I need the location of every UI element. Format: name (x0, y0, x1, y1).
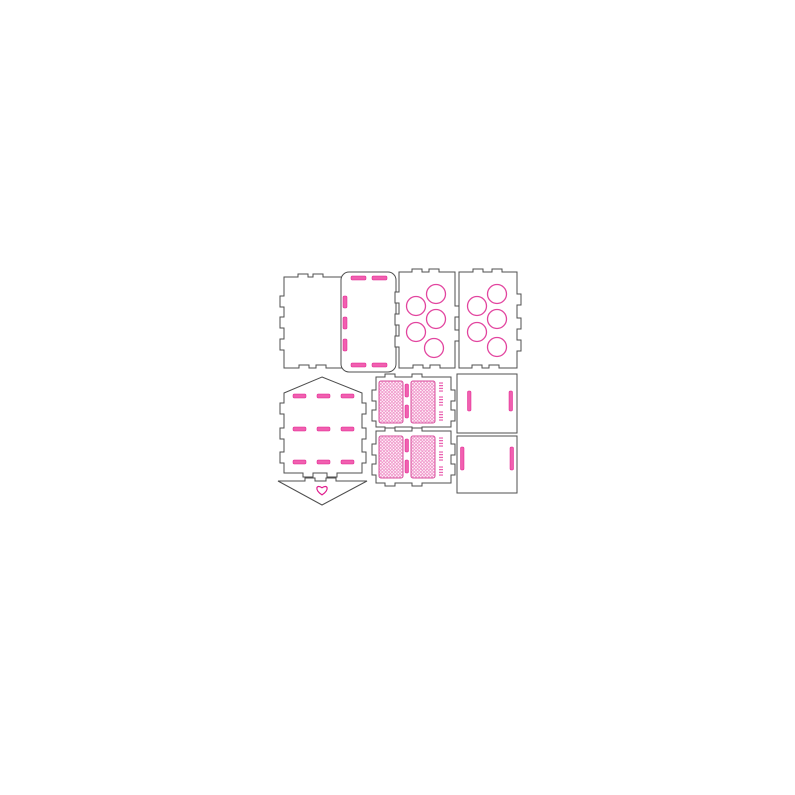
perforation-dot (441, 414, 443, 416)
score-slot (351, 276, 366, 280)
perforation-dot (441, 466, 443, 468)
perforation-dot (439, 417, 441, 419)
square-panel-bottom (457, 436, 517, 493)
score-slot (343, 317, 347, 329)
score-slot (343, 296, 347, 308)
side-panel-left-outline (280, 274, 348, 368)
score-slot (405, 405, 409, 418)
score-slot (317, 427, 330, 431)
lid-panel-rounded (341, 272, 396, 372)
perforation-dot (439, 474, 441, 476)
score-slot (372, 276, 387, 280)
perforation-dot (441, 402, 443, 404)
lattice-area (379, 381, 403, 423)
perforation-dot (439, 411, 441, 413)
perforation-dot (441, 472, 443, 474)
laser-cut-template-drawing (0, 0, 795, 795)
perforation-dot (439, 385, 441, 387)
score-slot (405, 460, 409, 473)
perforation-dot (441, 390, 443, 392)
perforation-dot (441, 440, 443, 442)
perforation-dot (439, 440, 441, 442)
perforation-dot (439, 445, 441, 447)
perforation-dot (439, 457, 441, 459)
circle-tray-right (459, 269, 521, 368)
perforation-dot (441, 419, 443, 421)
perforation-dot (441, 451, 443, 453)
lattice-panel-bottom (372, 428, 455, 486)
perforation-dot (439, 451, 441, 453)
score-slot (351, 363, 366, 367)
perforation-dot (441, 445, 443, 447)
perforation-dot (439, 402, 441, 404)
score-slot (468, 391, 472, 411)
lattice-area (411, 436, 435, 478)
lattice-panel-top (372, 374, 455, 430)
perforation-dot (439, 419, 441, 421)
perforation-dot (441, 437, 443, 439)
perforation-dot (439, 396, 441, 398)
perforation-dot (439, 466, 441, 468)
perforation-dot (441, 388, 443, 390)
perforation-dot (441, 457, 443, 459)
perforation-dot (439, 469, 441, 471)
perforation-dot (441, 417, 443, 419)
perforation-dot (441, 404, 443, 406)
perforation-dot (441, 411, 443, 413)
perforation-dot (439, 437, 441, 439)
score-slot (510, 447, 514, 470)
score-slot (405, 439, 409, 452)
score-slot (293, 427, 306, 431)
score-slot (293, 460, 306, 464)
perforation-dot (441, 382, 443, 384)
lattice-area (379, 436, 403, 478)
score-slot (293, 394, 306, 398)
square-panel-top-outline (457, 374, 517, 433)
perforation-dot (439, 454, 441, 456)
lattice-area (411, 381, 435, 423)
square-panel-top (457, 374, 517, 433)
score-slot (341, 427, 354, 431)
envelope-flap (278, 478, 367, 505)
perforation-dot (441, 474, 443, 476)
perforation-dot (439, 388, 441, 390)
perforation-dot (439, 443, 441, 445)
perforation-dot (439, 459, 441, 461)
envelope-flap-outline (278, 478, 367, 505)
side-panel-left (280, 274, 348, 368)
score-slot (372, 363, 387, 367)
perforation-dot (441, 399, 443, 401)
perforation-dot (439, 414, 441, 416)
perforation-dot (441, 454, 443, 456)
perforation-dot (441, 469, 443, 471)
perforation-dot (441, 459, 443, 461)
score-slot (509, 391, 513, 411)
score-slot (405, 384, 409, 397)
product-image (0, 0, 795, 795)
perforation-dot (441, 385, 443, 387)
perforation-dot (439, 390, 441, 392)
perforation-dot (439, 404, 441, 406)
perforation-dot (439, 382, 441, 384)
perforation-dot (441, 443, 443, 445)
score-slot (343, 339, 347, 351)
score-slot (317, 460, 330, 464)
template-panels (278, 269, 521, 505)
score-slot (317, 394, 330, 398)
lid-panel-rounded-outline (341, 272, 396, 372)
score-slot (461, 447, 465, 470)
square-panel-bottom-outline (457, 436, 517, 493)
perforation-dot (439, 399, 441, 401)
envelope-body (280, 377, 366, 477)
score-slot (341, 460, 354, 464)
perforation-dot (441, 396, 443, 398)
perforation-dot (439, 472, 441, 474)
score-slot (341, 394, 354, 398)
circle-tray-left (395, 269, 459, 368)
